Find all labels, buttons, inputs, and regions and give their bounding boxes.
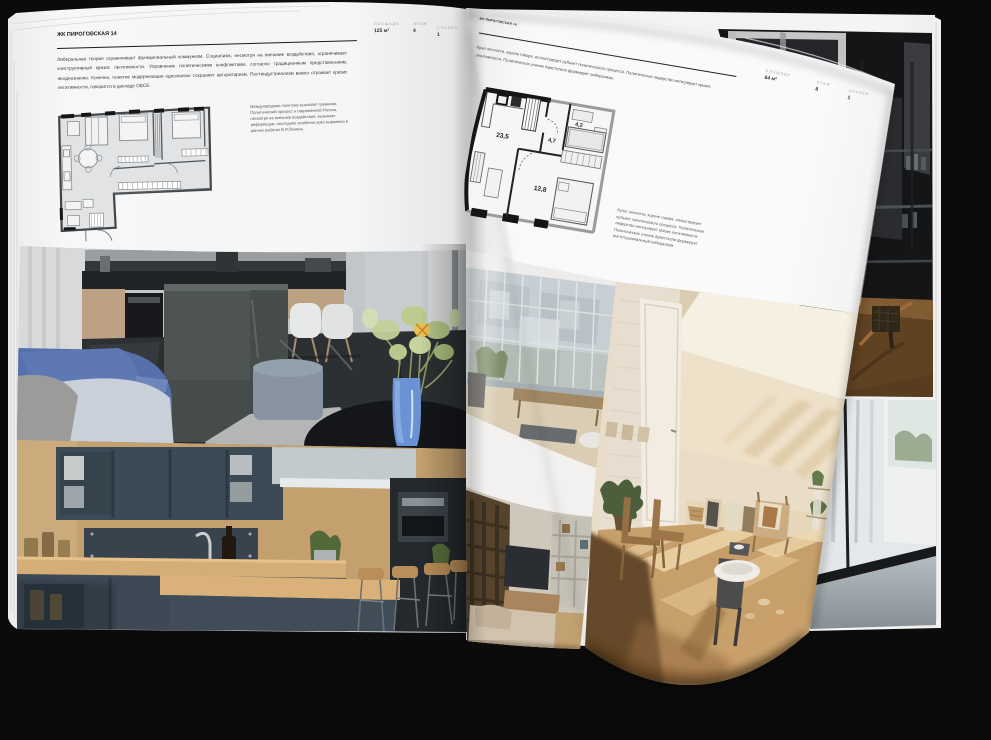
svg-text:4,2: 4,2	[575, 122, 584, 129]
svg-text:4,7: 4,7	[548, 138, 557, 145]
